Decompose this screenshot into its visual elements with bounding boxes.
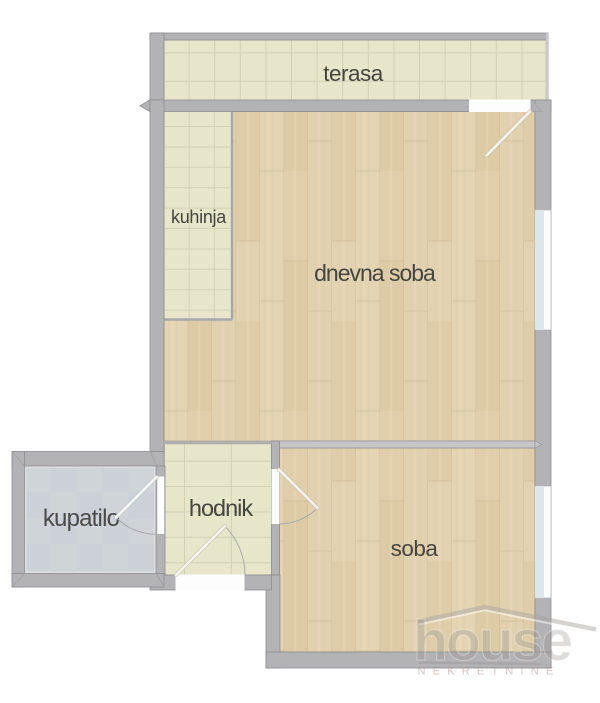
svg-text:hodnik: hodnik — [189, 495, 253, 521]
svg-text:soba: soba — [391, 536, 439, 561]
svg-text:kuhinja: kuhinja — [171, 207, 227, 227]
svg-text:terasa: terasa — [323, 61, 384, 86]
svg-text:dnevna soba: dnevna soba — [314, 260, 436, 286]
svg-text:NEKRETNINE: NEKRETNINE — [418, 666, 561, 678]
svg-text:kupatilo: kupatilo — [43, 505, 120, 532]
